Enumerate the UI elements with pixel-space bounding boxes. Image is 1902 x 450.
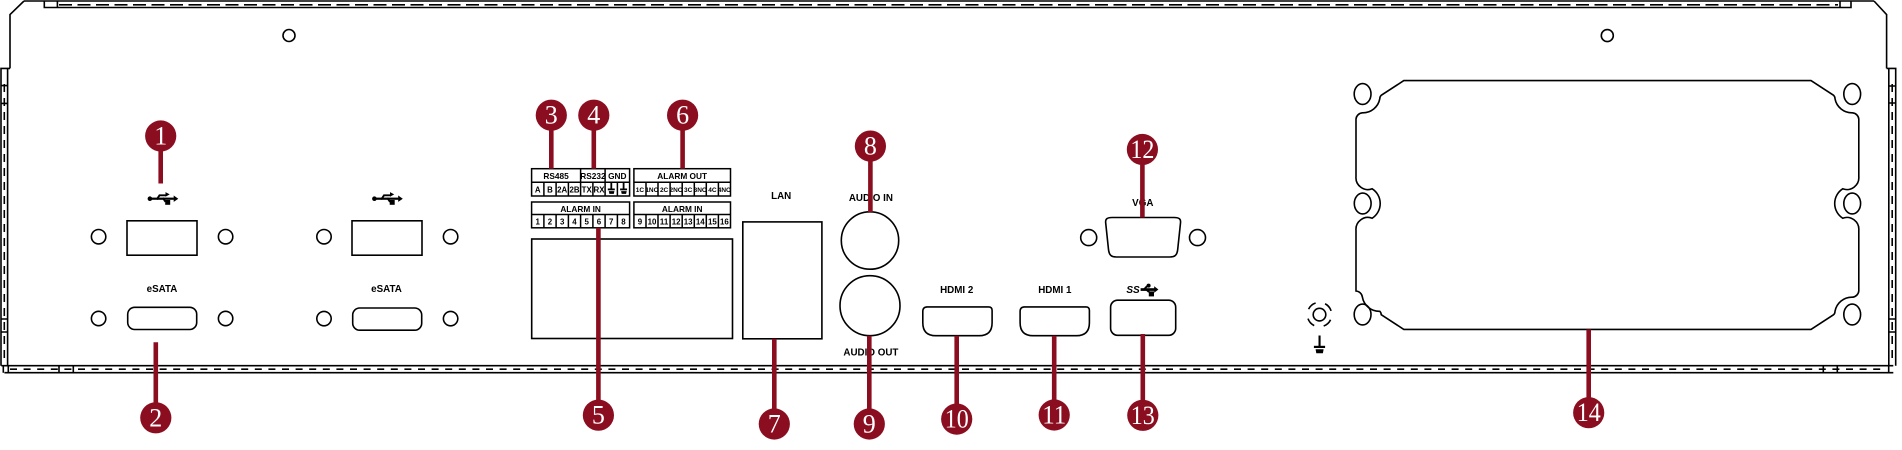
svg-text:11: 11 (660, 218, 669, 227)
svg-text:15: 15 (708, 218, 717, 227)
svg-text:1: 1 (536, 218, 541, 227)
svg-text:GND: GND (608, 171, 626, 181)
svg-text:13: 13 (1131, 401, 1155, 430)
svg-text:7: 7 (609, 218, 614, 227)
svg-text:3: 3 (545, 101, 558, 130)
svg-text:ALARM OUT: ALARM OUT (657, 171, 707, 181)
svg-text:14: 14 (696, 218, 705, 227)
svg-text:2NO: 2NO (670, 187, 683, 194)
svg-text:5: 5 (585, 218, 590, 227)
svg-text:3C: 3C (684, 187, 693, 194)
svg-text:eSATA: eSATA (371, 284, 402, 295)
svg-text:2: 2 (548, 218, 553, 227)
svg-text:8: 8 (864, 132, 877, 161)
svg-text:4NO: 4NO (718, 187, 731, 194)
svg-text:10: 10 (648, 218, 657, 227)
svg-text:9: 9 (638, 218, 643, 227)
svg-text:RS232: RS232 (580, 171, 606, 181)
svg-text:A: A (535, 185, 541, 194)
svg-text:ALARM IN: ALARM IN (560, 204, 601, 214)
svg-text:6: 6 (597, 218, 602, 227)
svg-text:1NO: 1NO (645, 187, 658, 194)
svg-text:9: 9 (863, 410, 876, 439)
svg-text:10: 10 (945, 405, 969, 434)
svg-text:12: 12 (672, 218, 681, 227)
svg-text:2C: 2C (660, 187, 669, 194)
svg-text:2A: 2A (557, 185, 567, 194)
svg-text:12: 12 (1130, 135, 1154, 164)
svg-text:4: 4 (587, 101, 600, 130)
svg-text:3NO: 3NO (694, 187, 707, 194)
svg-text:2B: 2B (569, 185, 579, 194)
svg-text:LAN: LAN (771, 191, 791, 202)
svg-text:8: 8 (621, 218, 626, 227)
svg-text:4: 4 (572, 218, 577, 227)
svg-text:HDMI 2: HDMI 2 (940, 285, 974, 296)
svg-text:11: 11 (1042, 401, 1066, 430)
svg-text:RS485: RS485 (543, 171, 569, 181)
svg-text:3: 3 (560, 218, 565, 227)
svg-text:13: 13 (684, 218, 693, 227)
svg-text:5: 5 (592, 401, 605, 430)
svg-text:2: 2 (149, 403, 162, 432)
svg-text:7: 7 (768, 410, 781, 439)
svg-text:B: B (547, 185, 553, 194)
svg-text:SS: SS (1126, 285, 1140, 296)
svg-text:1: 1 (154, 122, 167, 151)
svg-text:TX: TX (582, 185, 593, 194)
svg-text:HDMI 1: HDMI 1 (1038, 285, 1072, 296)
svg-text:eSATA: eSATA (147, 284, 178, 295)
svg-text:6: 6 (676, 101, 689, 130)
svg-text:1C: 1C (636, 187, 645, 194)
svg-text:14: 14 (1577, 398, 1601, 427)
svg-text:ALARM IN: ALARM IN (662, 204, 703, 214)
svg-text:16: 16 (720, 218, 729, 227)
svg-text:RX: RX (594, 185, 606, 194)
svg-text:4C: 4C (708, 187, 717, 194)
